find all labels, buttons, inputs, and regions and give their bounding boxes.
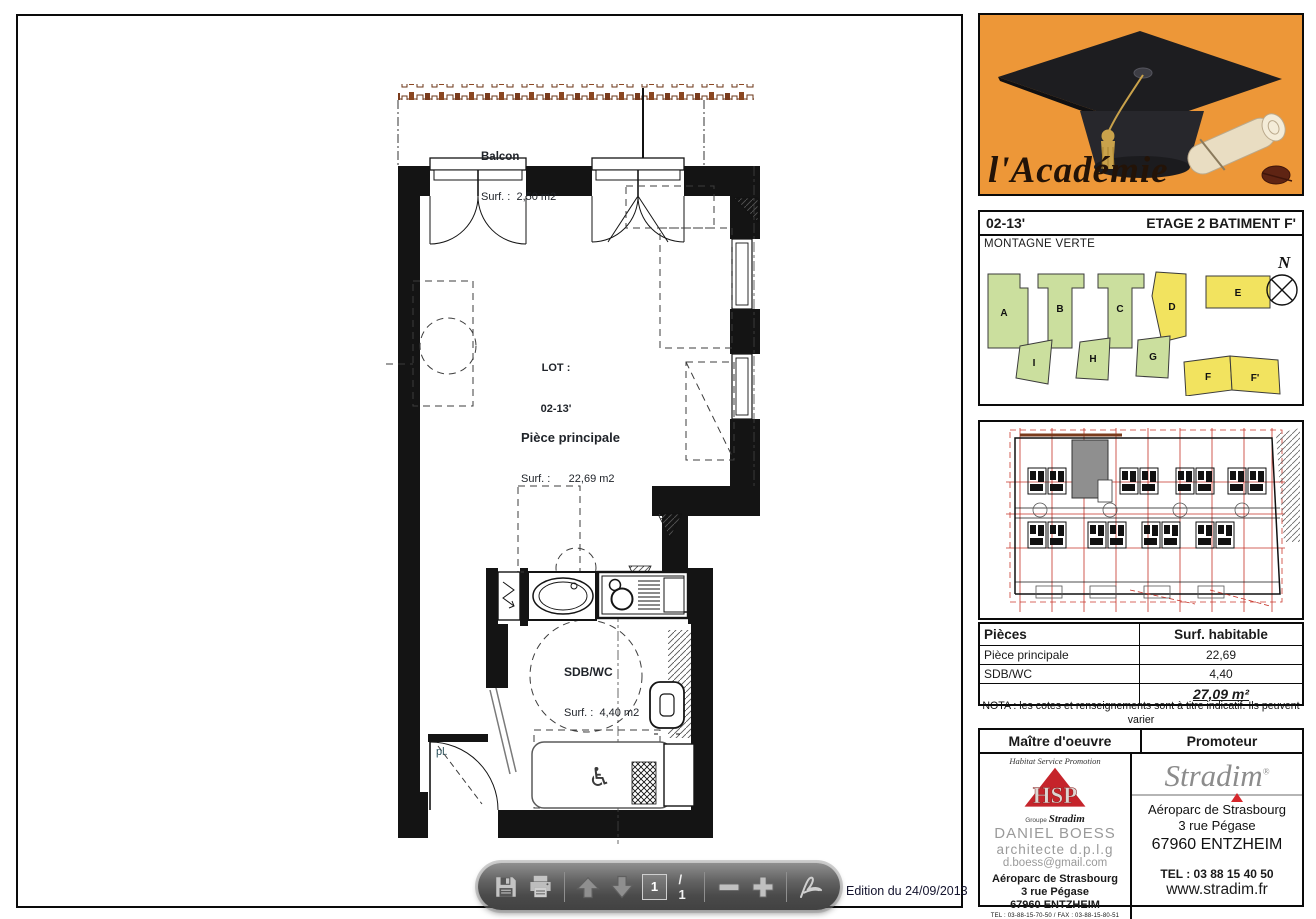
kitchenette xyxy=(598,572,698,619)
drawing-frame: ♿ Balcon Surf. : 2,50 m2 LOT : 02-13' Pi… xyxy=(16,14,963,908)
academie-logo-box: l'Académie xyxy=(978,13,1304,196)
pdf-viewer: { "viewer": { "edition": "Edition du 24/… xyxy=(0,0,1316,916)
promoter-header: Promoteur xyxy=(1142,730,1302,752)
toolbar-separator xyxy=(786,872,787,902)
svg-text:H: H xyxy=(1089,354,1096,365)
table-header: Pièces Surf. habitable xyxy=(980,624,1302,645)
zoom-out-button[interactable] xyxy=(714,870,742,904)
contacts-header: Maître d'oeuvre Promoteur xyxy=(980,730,1302,754)
print-icon xyxy=(527,873,554,900)
toolbar-separator xyxy=(704,872,705,902)
main-room-label: Pièce principale Surf. : 22,69 m2 xyxy=(521,402,620,515)
location-box: 02-13' ETAGE 2 BATIMENT F' MONTAGNE VERT… xyxy=(978,210,1304,406)
page-number-input[interactable]: 1 xyxy=(642,874,666,900)
building-plan-thumbnail xyxy=(978,420,1304,620)
closet-label: pl. xyxy=(436,746,448,760)
svg-text:A: A xyxy=(1000,308,1007,319)
floor-plan: ♿ Balcon Surf. : 2,50 m2 LOT : 02-13' Pi… xyxy=(386,74,786,864)
promoter-website: www.stradim.fr xyxy=(1132,881,1302,899)
acrobat-icon xyxy=(796,872,826,902)
svg-text:F': F' xyxy=(1251,373,1260,384)
next-page-button[interactable] xyxy=(608,870,636,904)
stradim-rule xyxy=(1132,794,1302,796)
page-up-icon xyxy=(574,873,602,901)
svg-text:F: F xyxy=(1205,372,1211,383)
balcony-label: Balcon Surf. : 2,50 m2 xyxy=(481,122,556,233)
architect-header: Maître d'oeuvre xyxy=(980,730,1142,752)
svg-text:I: I xyxy=(1033,358,1036,369)
window-right xyxy=(592,158,684,242)
svg-text:D: D xyxy=(1168,302,1175,313)
zoom-out-icon xyxy=(715,873,743,901)
pdf-toolbar: 1 / 1 xyxy=(478,863,840,910)
svg-text:E: E xyxy=(1235,288,1242,299)
svg-text:C: C xyxy=(1116,304,1123,315)
svg-text:N: N xyxy=(1277,253,1291,272)
zoom-in-button[interactable] xyxy=(749,870,777,904)
brand-name: l'Académie xyxy=(988,149,1169,192)
svg-text:HSP: HSP xyxy=(1033,783,1077,808)
sliding-door xyxy=(490,688,516,774)
lot-number: 02-13' xyxy=(986,215,1025,231)
architect-name: DANIEL BOESS xyxy=(980,825,1130,842)
balcony-railing xyxy=(398,84,754,100)
compass-icon: N xyxy=(1267,253,1297,305)
svg-text:G: G xyxy=(1149,352,1157,363)
architect-column: Habitat Service Promotion HSP Groupe Str… xyxy=(980,754,1132,919)
save-icon xyxy=(493,874,519,900)
duct-box xyxy=(498,572,520,620)
location-header: 02-13' ETAGE 2 BATIMENT F' xyxy=(980,212,1302,236)
page-count: / 1 xyxy=(679,872,692,902)
stradim-logo: Stradim® xyxy=(1132,760,1302,791)
table-row: Pièce principale 22,69 xyxy=(980,645,1302,664)
shower: ♿ xyxy=(532,742,694,808)
contacts-box: Maître d'oeuvre Promoteur Habitat Servic… xyxy=(978,728,1304,907)
building-plan-drawing xyxy=(980,422,1302,618)
page-down-icon xyxy=(608,873,636,901)
wc xyxy=(650,682,684,734)
edition-date: Edition du 24/09/2013 xyxy=(846,884,968,898)
washbasin xyxy=(528,572,596,620)
promoter-phone: TEL : 03 88 15 40 50 xyxy=(1132,867,1302,881)
floor-building: ETAGE 2 BATIMENT F' xyxy=(1146,215,1296,231)
toolbar-separator xyxy=(564,872,565,902)
acrobat-button[interactable] xyxy=(796,870,826,904)
site-map: A B C D E I H G F F' N xyxy=(980,250,1302,396)
zoom-in-icon xyxy=(749,873,777,901)
previous-page-button[interactable] xyxy=(574,870,602,904)
svg-text:♿: ♿ xyxy=(588,763,611,793)
svg-text:B: B xyxy=(1056,304,1063,315)
hsp-logo: HSP xyxy=(1020,766,1090,810)
district-name: MONTAGNE VERTE xyxy=(980,236,1302,250)
bathroom-label: SDB/WC Surf. : 4,40 m2 xyxy=(564,637,639,748)
save-button[interactable] xyxy=(492,870,520,904)
table-row: SDB/WC 4,40 xyxy=(980,664,1302,683)
print-button[interactable] xyxy=(526,870,554,904)
promoter-column: Stradim® Aéroparc de Strasbourg 3 rue Pé… xyxy=(1132,754,1302,919)
architect-email: d.boess@gmail.com xyxy=(980,857,1130,869)
surface-table: Pièces Surf. habitable Pièce principale … xyxy=(978,622,1304,706)
